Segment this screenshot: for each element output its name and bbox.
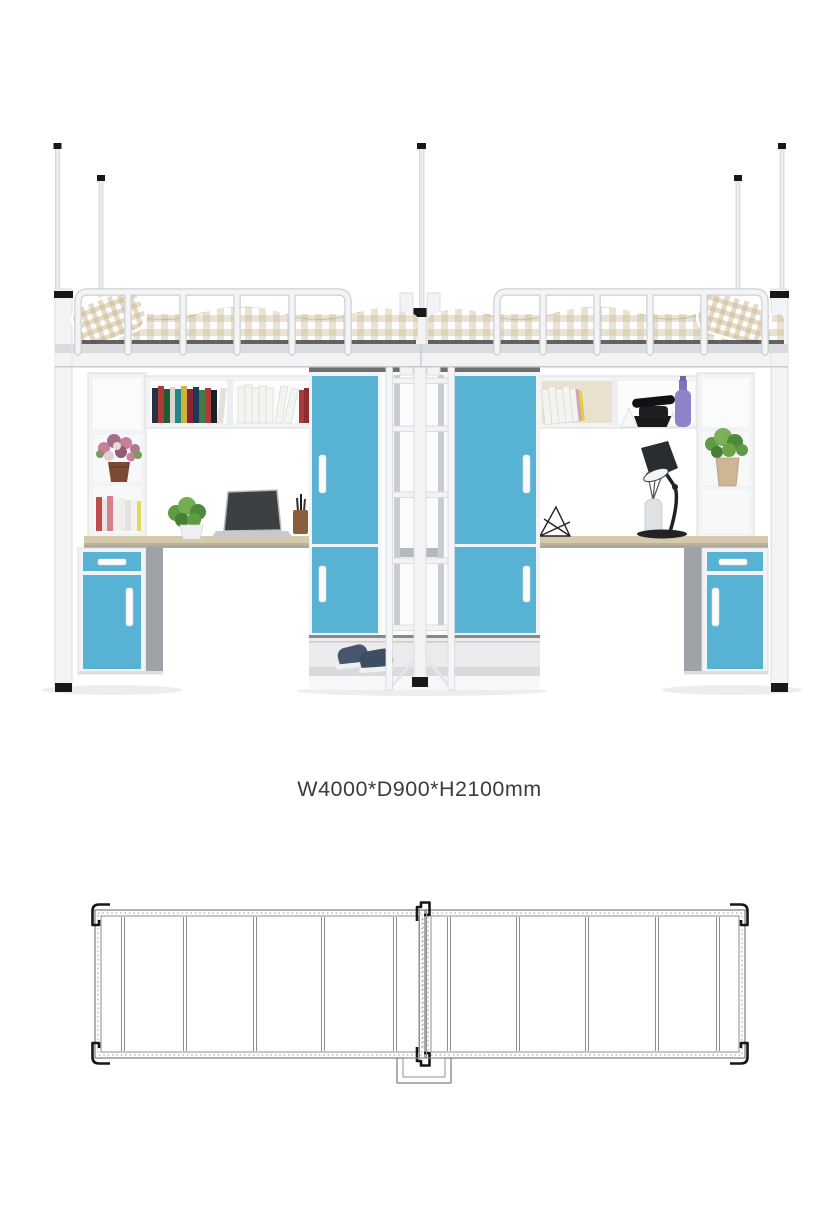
post-foot [55, 683, 72, 692]
right-wardrobe [449, 372, 540, 635]
post-foot [412, 677, 428, 687]
plan-slats-right [448, 917, 720, 1051]
pole-cap [417, 143, 426, 149]
right-side-bookcase [697, 373, 754, 539]
colorful-books [152, 386, 227, 423]
pole-cap [778, 143, 786, 149]
left-unit [78, 373, 317, 675]
leaning-white-books [541, 384, 585, 425]
pole-clamp [770, 291, 789, 298]
pole-cap [734, 175, 742, 181]
left-side-bookcase [88, 373, 146, 539]
wire-decor [540, 507, 570, 536]
pen-holder [293, 494, 308, 534]
left-cabinet [78, 548, 163, 675]
bed-deck [55, 340, 788, 368]
right-unit [530, 373, 768, 675]
right-overhead-shelf [537, 376, 700, 428]
pole-clamp [54, 291, 73, 298]
dimension-label: W4000*D900*H2100mm [0, 777, 839, 802]
small-books [96, 496, 141, 531]
plan-left-bay [95, 910, 425, 1058]
left-overhead-shelf [145, 376, 317, 428]
left-wardrobe [309, 372, 381, 635]
product-image-canvas: W4000*D900*H2100mm [0, 0, 839, 1211]
laptop [212, 490, 292, 537]
pole-cap [54, 143, 62, 149]
plan-ladder [397, 1058, 451, 1083]
plan-view-drawing [93, 903, 748, 1084]
right-cabinet [684, 548, 768, 675]
post-foot [771, 683, 788, 692]
plan-right-bay [425, 910, 745, 1058]
desk-plant [168, 497, 206, 539]
bedding-right [428, 287, 784, 348]
plan-slats-left [122, 917, 397, 1051]
pole-cap [97, 175, 105, 181]
loft-bed-product-render [0, 0, 839, 1211]
